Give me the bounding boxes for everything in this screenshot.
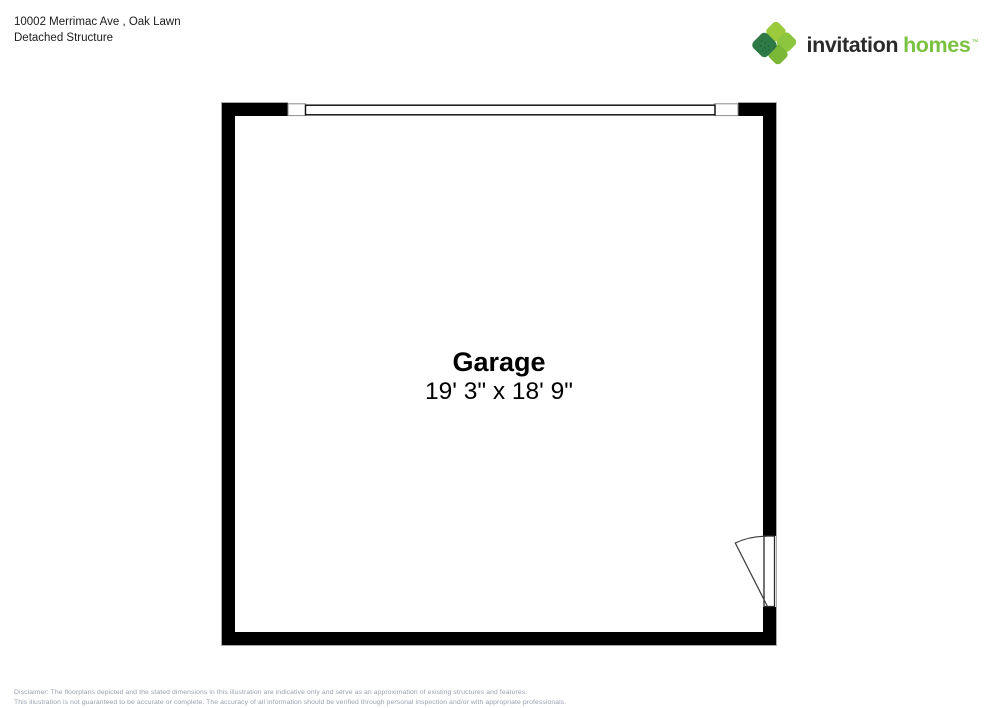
- room-dimensions: 19' 3" x 18' 9": [299, 377, 699, 406]
- garage-door-opening-icon: [306, 105, 716, 115]
- wall-right-lower: [763, 607, 776, 645]
- wall-right-upper: [763, 103, 776, 536]
- wall-left: [222, 103, 235, 645]
- swing-door-icon: [735, 536, 767, 606]
- wall-top-right-segment: [738, 103, 776, 116]
- jamb-left: [288, 104, 306, 116]
- room-label: Garage 19' 3" x 18' 9": [299, 348, 699, 406]
- room-name: Garage: [299, 348, 699, 377]
- disclaimer-line-1: Disclaimer: The floorplans depicted and …: [14, 688, 654, 698]
- disclaimer: Disclaimer: The floorplans depicted and …: [14, 688, 654, 708]
- jamb-right: [715, 104, 739, 116]
- door-leaf: [764, 536, 775, 607]
- wall-top-left-segment: [222, 103, 288, 116]
- wall-bottom: [222, 632, 776, 645]
